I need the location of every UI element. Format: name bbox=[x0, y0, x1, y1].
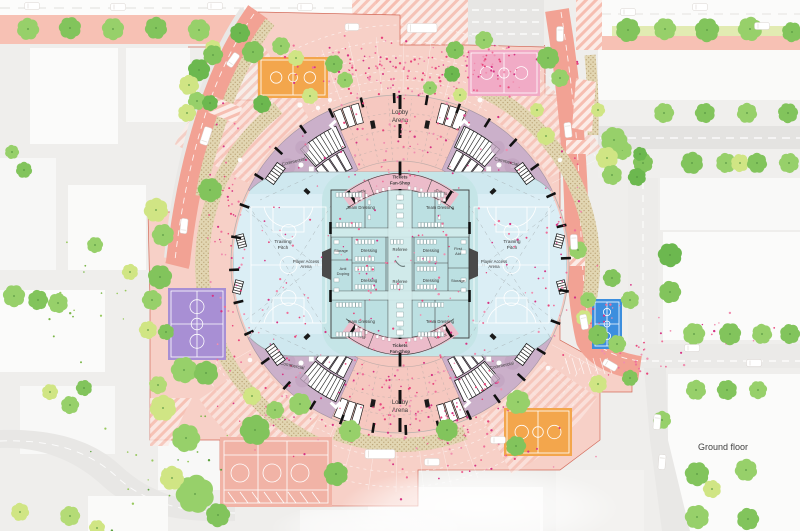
svg-text:Tickets: Tickets bbox=[392, 175, 408, 180]
svg-text:Aid: Aid bbox=[455, 251, 461, 256]
svg-text:Arena: Arena bbox=[300, 264, 312, 269]
svg-text:Storage: Storage bbox=[334, 248, 349, 253]
svg-text:Pitch: Pitch bbox=[507, 245, 518, 251]
svg-text:Referee: Referee bbox=[393, 247, 409, 252]
svg-text:Storage: Storage bbox=[451, 278, 466, 283]
svg-text:Dressing: Dressing bbox=[423, 278, 440, 283]
svg-text:Dressing: Dressing bbox=[361, 248, 378, 253]
svg-text:Tickets: Tickets bbox=[392, 343, 408, 348]
svg-text:Doping: Doping bbox=[337, 271, 350, 276]
svg-text:Referee: Referee bbox=[393, 279, 409, 284]
svg-text:Arena: Arena bbox=[488, 264, 500, 269]
svg-text:Fan-Shop: Fan-Shop bbox=[390, 349, 411, 354]
svg-text:Team Dressing: Team Dressing bbox=[426, 205, 455, 210]
svg-text:Dressing: Dressing bbox=[423, 248, 440, 253]
svg-text:Pitch: Pitch bbox=[278, 245, 289, 251]
svg-text:Fan-Shop: Fan-Shop bbox=[390, 181, 411, 186]
svg-text:Training: Training bbox=[274, 239, 291, 245]
svg-text:Team Dressing: Team Dressing bbox=[347, 205, 376, 210]
svg-text:Ground floor: Ground floor bbox=[698, 442, 748, 452]
svg-text:Lobby: Lobby bbox=[392, 110, 408, 116]
